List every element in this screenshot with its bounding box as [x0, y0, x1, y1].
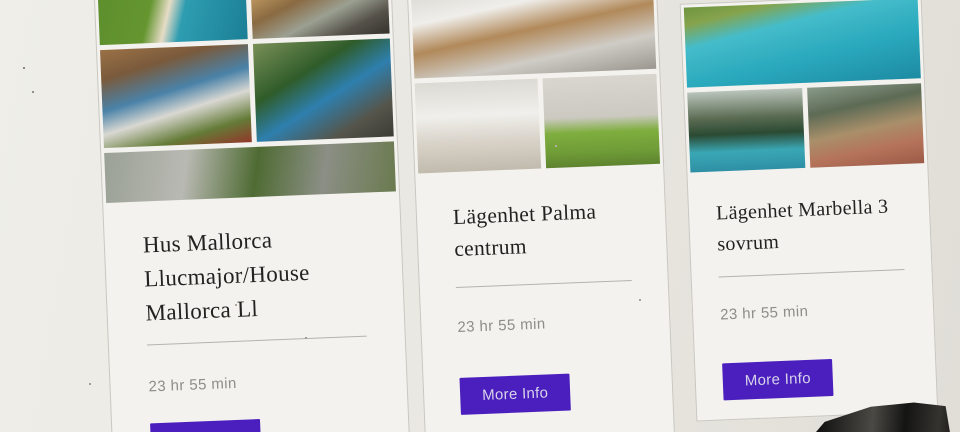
photo-aerial-street-hedges[interactable] [104, 141, 396, 203]
photo-outdoor-dining-table[interactable] [251, 0, 390, 39]
photo-long-pool-lawn[interactable] [684, 0, 921, 88]
divider [147, 336, 367, 346]
photo-collage [681, 0, 928, 176]
listing-card-marbella: Lägenhet Marbella 3 sovrum 23 hr 55 min … [680, 0, 939, 421]
listing-card-hus-mallorca: Hus Mallorca Llucmajor/House Mallorca Ll… [94, 0, 413, 432]
more-info-button[interactable]: More Info [459, 373, 570, 414]
photo-living-room-white-beams[interactable] [415, 79, 542, 174]
card-body: Lägenhet Marbella 3 sovrum 23 hr 55 min … [688, 166, 937, 401]
photo-dining-room-wooden-table[interactable] [411, 0, 656, 79]
listing-card-palma-centrum: Lägenhet Palma centrum 23 hr 55 min More… [407, 0, 678, 432]
listing-title: Lägenhet Marbella 3 sovrum [715, 191, 903, 260]
photo-villa-pool-salad-table[interactable] [100, 44, 252, 148]
photo-pool-corner-lawn[interactable] [98, 0, 248, 45]
card-body: Hus Mallorca Llucmajor/House Mallorca Ll… [103, 194, 409, 432]
more-info-button[interactable]: More Info [150, 419, 261, 432]
photo-garden-pool-dining[interactable] [253, 38, 394, 141]
photo-collage [95, 0, 399, 206]
more-info-button[interactable]: More Info [722, 359, 833, 400]
photographed-screen: Hus Mallorca Llucmajor/House Mallorca Ll… [0, 0, 960, 432]
photo-pool-apartment-trees[interactable] [687, 88, 805, 173]
listing-title: Hus Mallorca Llucmajor/House Mallorca Ll [142, 220, 366, 330]
listing-title: Lägenhet Palma centrum [452, 194, 630, 266]
time-remaining: 23 hr 55 min [720, 299, 907, 323]
time-remaining: 23 hr 55 min [457, 311, 634, 335]
photo-collage [408, 0, 663, 177]
photo-bedroom-green-bed[interactable] [543, 74, 660, 168]
listings-page: Hus Mallorca Llucmajor/House Mallorca Ll… [0, 0, 960, 432]
divider [719, 269, 905, 277]
photo-terrace-wooden-chairs[interactable] [807, 83, 925, 168]
card-body: Lägenhet Palma centrum 23 hr 55 min More… [415, 167, 672, 416]
divider [456, 279, 632, 287]
time-remaining: 23 hr 55 min [148, 370, 369, 396]
